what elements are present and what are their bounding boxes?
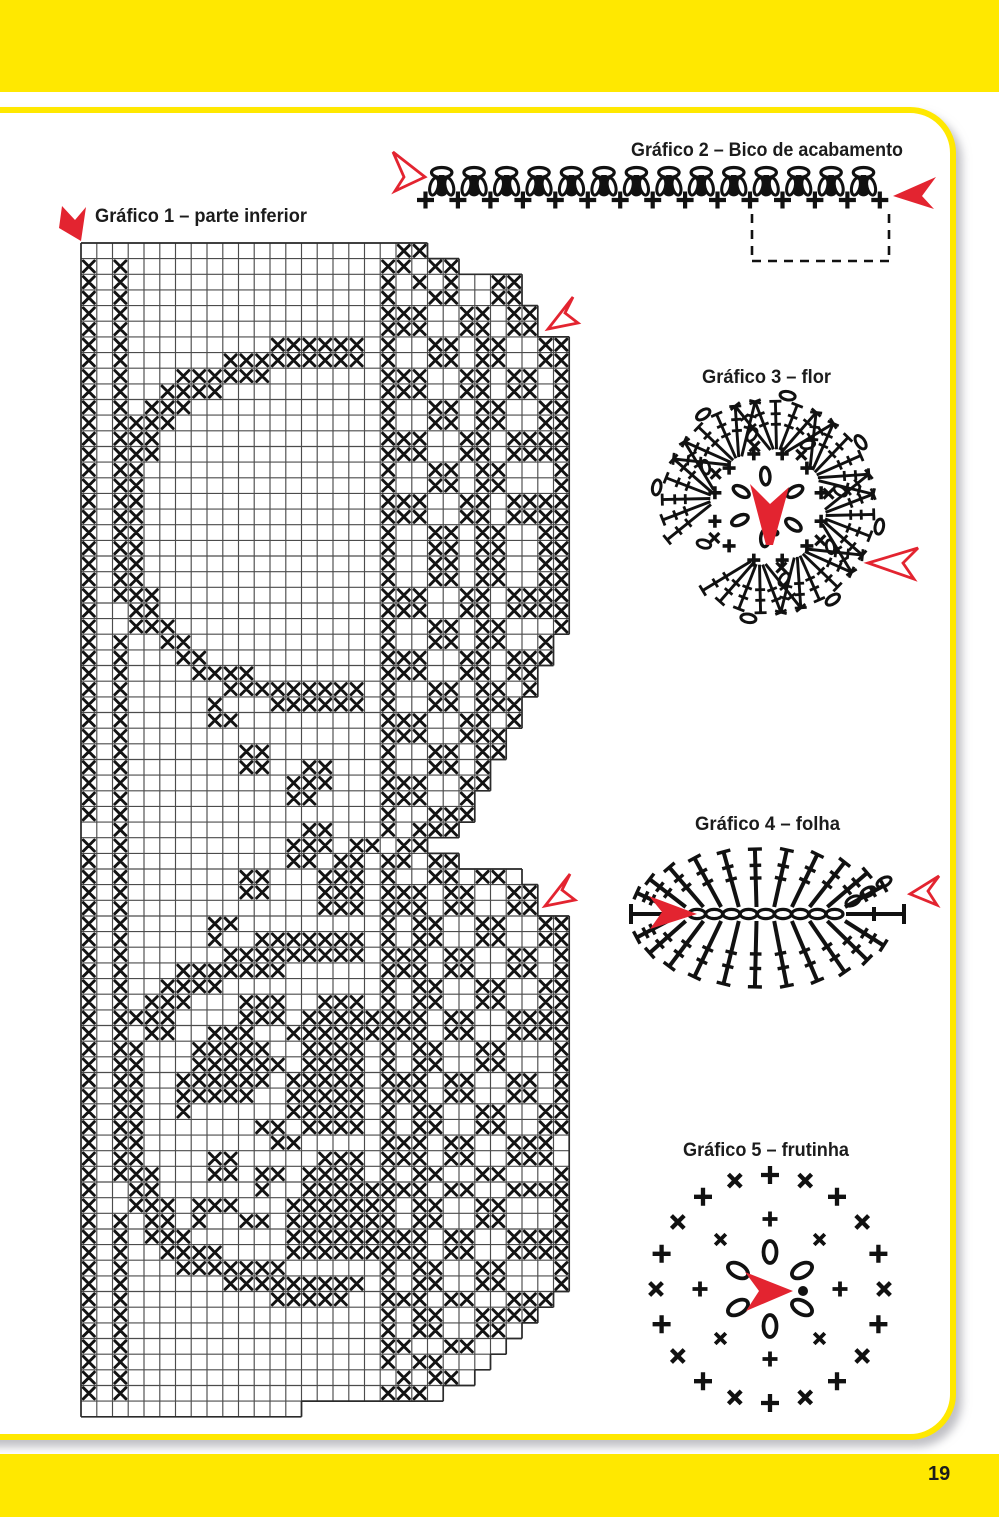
svg-text:Gráfico 5 – frutinha: Gráfico 5 – frutinha — [683, 1139, 849, 1161]
svg-text:Gráfico 1 – parte inferior: Gráfico 1 – parte inferior — [95, 205, 307, 227]
svg-text:Gráfico 2 – Bico de acabamento: Gráfico 2 – Bico de acabamento — [631, 139, 903, 161]
svg-text:Gráfico 3 – flor: Gráfico 3 – flor — [702, 366, 831, 388]
svg-text:Gráfico 4 – folha: Gráfico 4 – folha — [695, 813, 840, 835]
